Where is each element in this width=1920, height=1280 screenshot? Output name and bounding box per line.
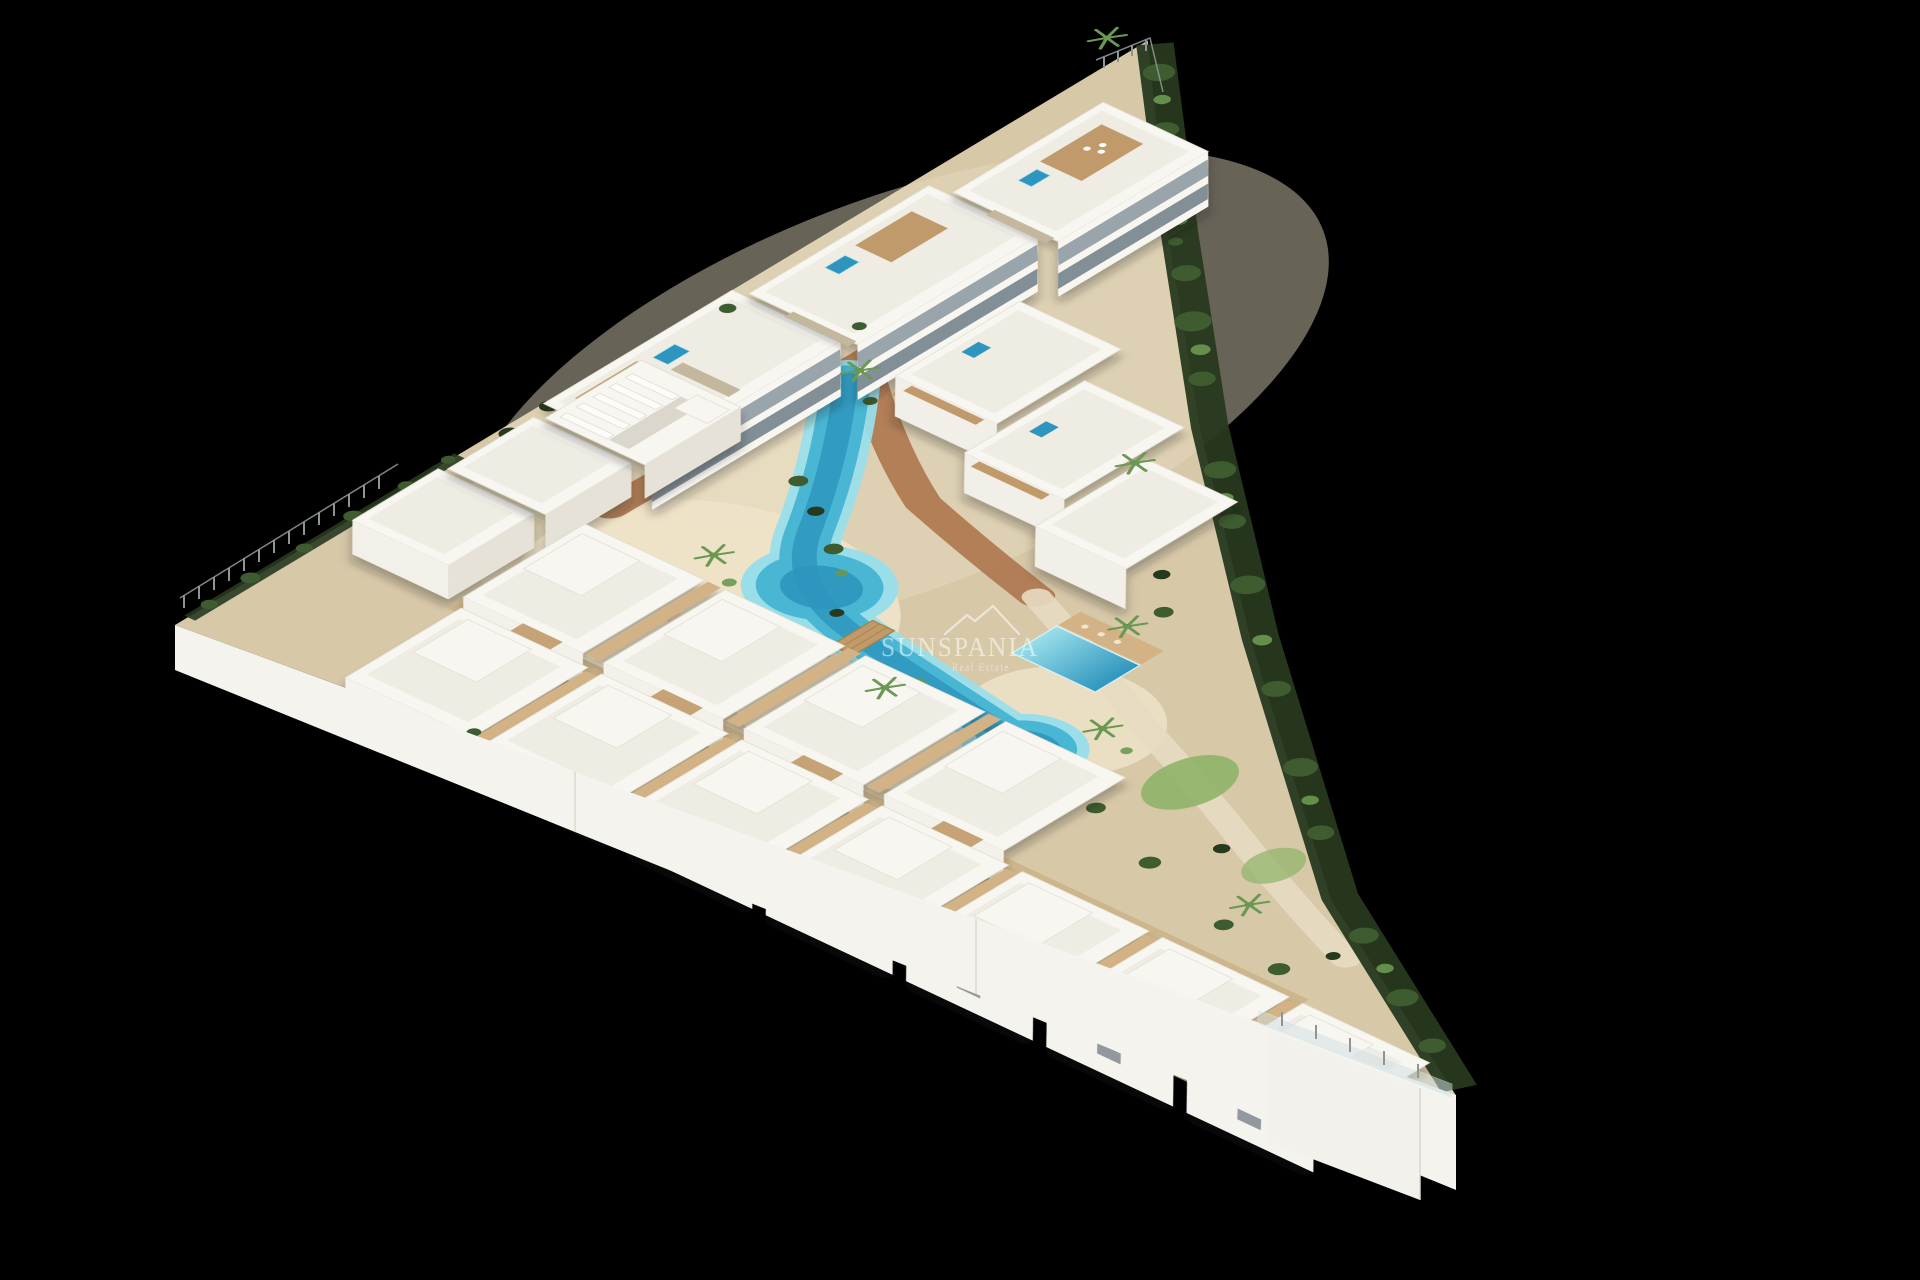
aerial-render: SUNSPANIA Real Estate <box>0 0 1920 1280</box>
watermark-tagline: Real Estate <box>952 660 1010 674</box>
render-canvas: SUNSPANIA Real Estate <box>0 0 1920 1280</box>
watermark-brand: SUNSPANIA <box>881 632 1039 662</box>
